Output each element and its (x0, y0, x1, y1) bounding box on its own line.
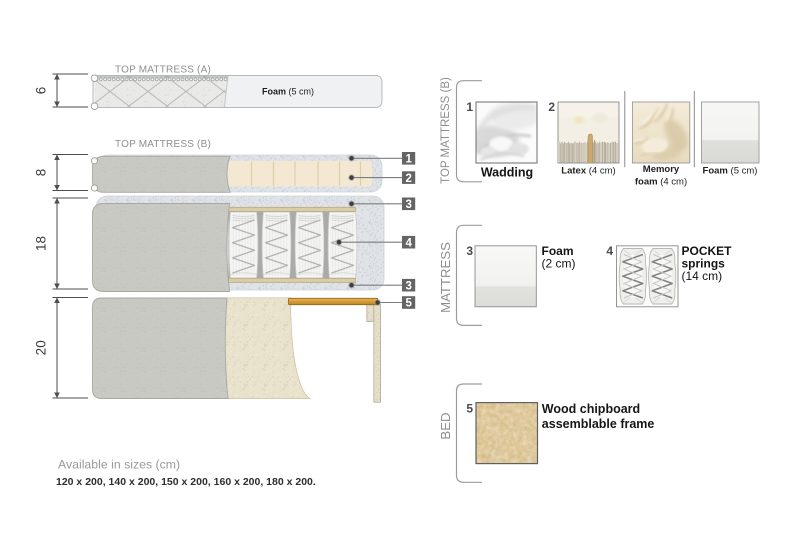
svg-text:1: 1 (466, 100, 473, 114)
svg-text:3: 3 (405, 280, 411, 292)
svg-text:Wadding: Wadding (481, 166, 533, 180)
svg-text:foam (4 cm): foam (4 cm) (635, 177, 687, 188)
svg-text:Foam (5 cm): Foam (5 cm) (703, 166, 758, 177)
svg-text:5: 5 (405, 298, 412, 310)
svg-text:6: 6 (34, 87, 49, 95)
svg-text:TOP MATTRESS (B): TOP MATTRESS (B) (440, 77, 452, 184)
svg-text:2: 2 (405, 173, 411, 185)
svg-text:Wood chipboard: Wood chipboard (542, 402, 640, 416)
svg-text:2: 2 (548, 100, 555, 114)
svg-text:TOP MATTRESS (A): TOP MATTRESS (A) (115, 65, 211, 76)
svg-text:4: 4 (405, 237, 412, 249)
svg-text:assemblable frame: assemblable frame (542, 417, 655, 431)
svg-text:TOP MATTRESS (B): TOP MATTRESS (B) (115, 139, 211, 150)
svg-text:3: 3 (466, 244, 473, 258)
svg-text:Latex (4 cm): Latex (4 cm) (561, 166, 615, 177)
svg-text:BED: BED (438, 412, 453, 439)
svg-text:5: 5 (466, 402, 473, 416)
svg-text:3: 3 (405, 199, 411, 211)
svg-text:120 x 200, 140 x 200, 150 x 20: 120 x 200, 140 x 200, 150 x 200, 160 x 2… (56, 476, 316, 488)
svg-text:1: 1 (405, 154, 412, 166)
svg-text:4: 4 (606, 244, 613, 258)
svg-text:18: 18 (34, 236, 49, 251)
svg-text:MATTRESS: MATTRESS (438, 242, 453, 313)
svg-text:Foam (5 cm): Foam (5 cm) (262, 87, 314, 97)
svg-text:(2 cm): (2 cm) (542, 257, 576, 271)
svg-text:20: 20 (34, 340, 49, 355)
svg-text:Available in sizes (cm): Available in sizes (cm) (58, 458, 180, 472)
svg-text:8: 8 (34, 169, 49, 177)
svg-text:Memory: Memory (643, 164, 680, 175)
svg-text:(14 cm): (14 cm) (682, 269, 723, 283)
